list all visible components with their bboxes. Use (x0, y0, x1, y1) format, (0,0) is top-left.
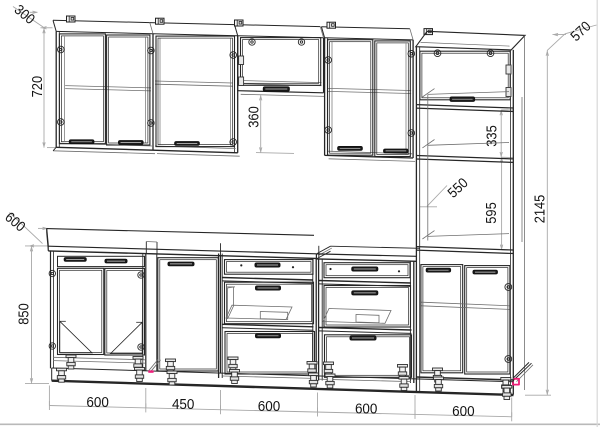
svg-text:360: 360 (247, 106, 263, 128)
svg-text:600: 600 (355, 401, 378, 417)
svg-text:720: 720 (30, 76, 46, 98)
svg-text:600: 600 (86, 395, 109, 411)
svg-text:450: 450 (172, 397, 195, 413)
svg-text:600: 600 (452, 404, 475, 420)
svg-text:595: 595 (484, 202, 500, 224)
svg-text:600: 600 (258, 399, 281, 415)
svg-text:850: 850 (16, 303, 32, 325)
svg-text:2145: 2145 (533, 195, 549, 224)
